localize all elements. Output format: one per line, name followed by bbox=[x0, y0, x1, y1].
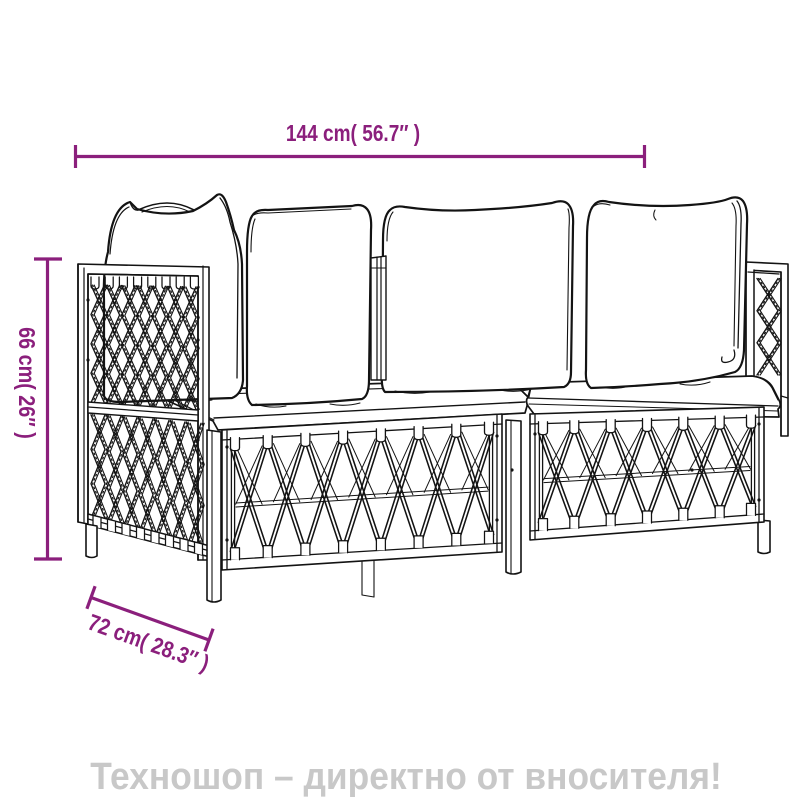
svg-text:144 cm( 56.7″ ): 144 cm( 56.7″ ) bbox=[286, 121, 420, 146]
svg-text:66 cm( 26″ ): 66 cm( 26″ ) bbox=[14, 327, 40, 439]
svg-text:Техношоп – директно от вносите: Техношоп – директно от вносителя! bbox=[90, 755, 722, 797]
